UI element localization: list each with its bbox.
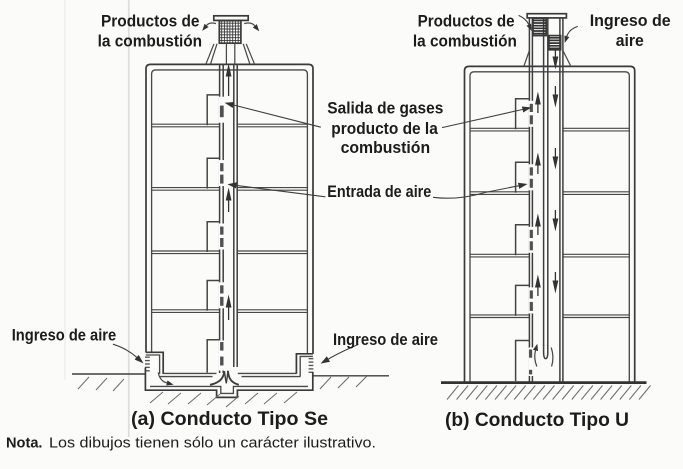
svg-text:(b) Conducto Tipo U: (b) Conducto Tipo U [445,409,629,431]
svg-text:Salida de gases: Salida de gases [327,99,443,118]
svg-text:Los dibujos tienen sólo un car: Los dibujos tienen sólo un carácter ilus… [49,436,376,452]
svg-text:aire: aire [616,31,644,50]
svg-text:Nota.: Nota. [6,436,42,452]
svg-text:Ingreso de: Ingreso de [590,11,671,30]
svg-text:la combustión: la combustión [413,31,517,50]
svg-text:Productos de: Productos de [418,11,515,30]
svg-text:Ingreso de aire: Ingreso de aire [12,325,117,344]
svg-text:Productos de: Productos de [101,11,200,30]
svg-text:combustión: combustión [341,138,431,157]
svg-text:producto de la: producto de la [331,119,438,138]
svg-text:Entrada de aire: Entrada de aire [327,182,431,201]
svg-text:(a) Conducto Tipo Se: (a) Conducto Tipo Se [131,408,328,430]
svg-text:la combustión: la combustión [98,31,203,50]
svg-text:Ingreso de aire: Ingreso de aire [333,330,438,349]
